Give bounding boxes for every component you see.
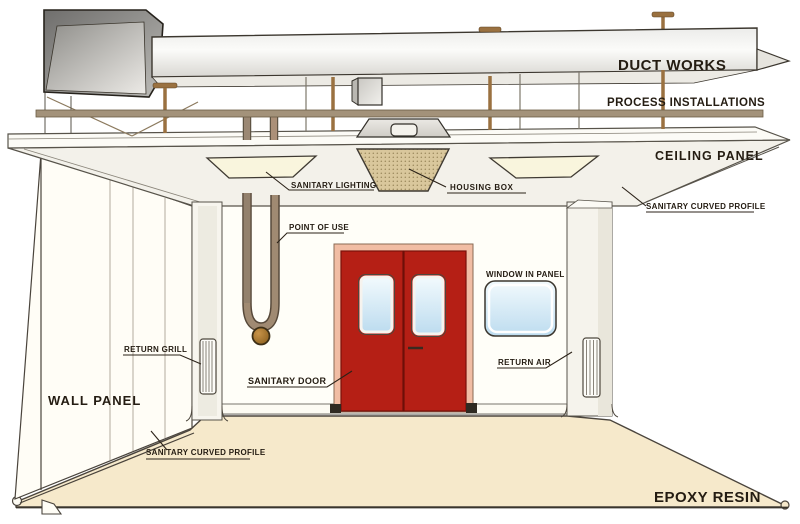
sanitary-door: [330, 244, 477, 413]
filter-box: [358, 78, 382, 105]
diagram-canvas: DUCT WORKS PROCESS INSTALLATIONS CEILING…: [0, 0, 800, 524]
label-point-of-use: POINT OF USE: [289, 223, 349, 232]
label-epoxy-resin: EPOXY RESIN: [654, 489, 761, 506]
label-process-installations: PROCESS INSTALLATIONS: [607, 97, 765, 109]
return-grill-left: [200, 339, 216, 394]
label-sanitary-curved-profile-floor: SANITARY CURVED PROFILE: [146, 448, 266, 457]
label-return-grill: RETURN GRILL: [124, 345, 187, 354]
point-of-use-valve: [253, 328, 270, 345]
door-stop-left: [330, 404, 341, 413]
door-vision-panel-left: [361, 277, 392, 332]
left-pillar: [186, 202, 228, 421]
label-return-air: RETURN AIR: [498, 358, 551, 367]
door-vision-panel-right: [414, 277, 443, 334]
filter-box-side: [352, 78, 358, 105]
hanger-t-bar: [479, 27, 501, 32]
hanger-t-bar: [652, 12, 674, 17]
label-window-in-panel: WINDOW IN PANEL: [486, 270, 565, 279]
window-in-panel: [485, 281, 556, 336]
hanger-t-bar: [153, 83, 177, 88]
cleanroom-diagram: DUCT WORKS PROCESS INSTALLATIONS CEILING…: [0, 0, 800, 524]
housing-box-handle: [391, 124, 417, 136]
label-sanitary-lighting: SANITARY LIGHTING: [291, 181, 376, 190]
duct-end-tip: [757, 49, 789, 70]
label-sanitary-door: SANITARY DOOR: [248, 376, 326, 386]
door-stop-right: [466, 403, 477, 413]
label-wall-panel: WALL PANEL: [48, 393, 141, 408]
right-pillar: [561, 200, 618, 417]
label-housing-box: HOUSING BOX: [450, 183, 514, 192]
label-ceiling-panel: CEILING PANEL: [655, 149, 764, 163]
label-duct-works: DUCT WORKS: [618, 57, 726, 74]
window-glass: [485, 281, 556, 336]
return-air-grill: [583, 338, 600, 397]
label-sanitary-curved-profile-ceiling: SANITARY CURVED PROFILE: [646, 202, 766, 211]
air-handling-unit-face: [46, 22, 146, 94]
services-zone: [36, 10, 789, 140]
process-pipe-rack: [36, 110, 763, 117]
